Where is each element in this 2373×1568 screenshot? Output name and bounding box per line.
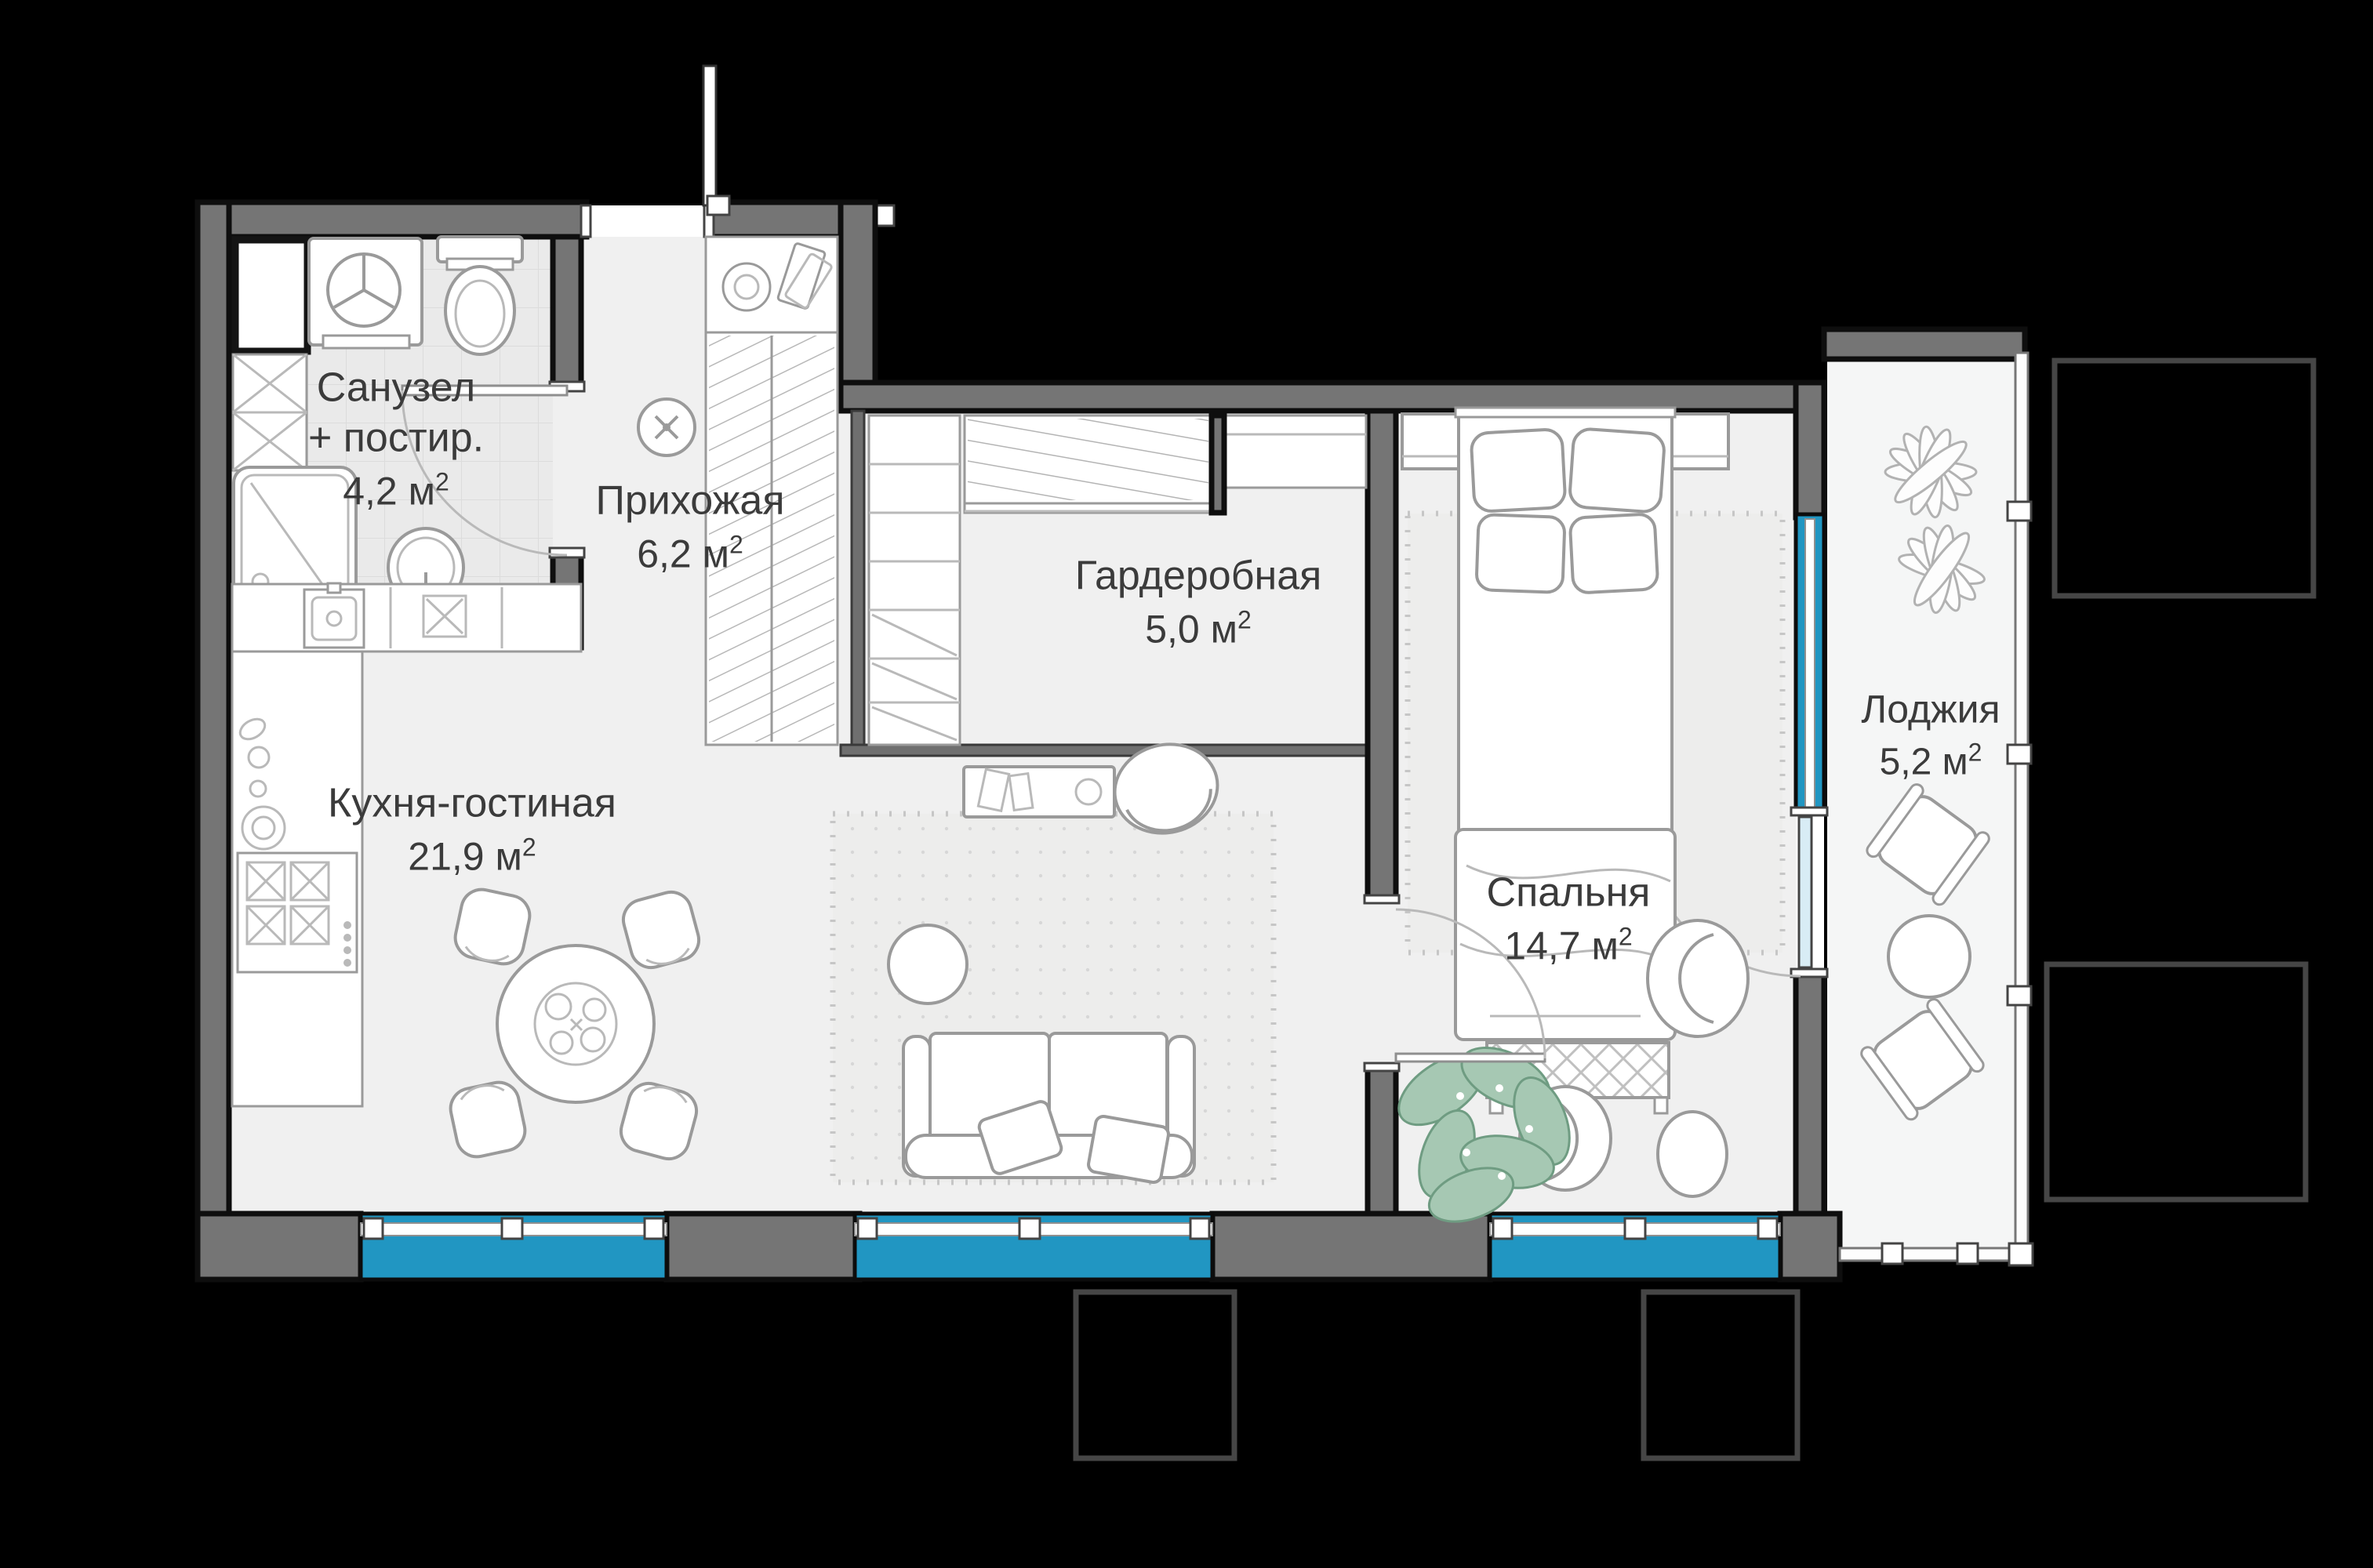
room-name: Санузел [308,368,484,408]
console-table [964,767,1114,817]
wardrobe-shelves [869,416,960,745]
ceiling-light-icon [638,399,695,456]
window-bedroom [1490,1214,1780,1279]
room-label-bathroom: Санузел + постир. 4,2 м2 [308,368,484,511]
wall-top-left [198,202,587,237]
room-area: 4,2 м2 [308,470,484,511]
entrance-door-leaf [703,66,716,205]
bedroom-armchair-top [1648,920,1748,1036]
room-label-wardrobe: Гардеробная 5,0 м2 [1075,556,1322,649]
pier-4 [1780,1214,1840,1279]
room-area: 5,2 м2 [1861,740,2000,782]
wall-end-cap [875,205,894,226]
bedroom-door-leaf [1396,1054,1545,1062]
room-label-bedroom: Спальня 14,7 м2 [1487,873,1651,966]
dining-chair [447,1079,529,1160]
wall-bathroom-right-upper [553,237,581,388]
wall-top-right-band [841,383,1824,411]
room-area: 21,9 м2 [328,835,616,877]
room-name: Спальня [1487,873,1651,913]
balcony-door-leaf [1799,817,1812,967]
wall-wardrobe-bottom [841,745,1396,756]
entrance-threshold [587,205,712,237]
room-name: Гардеробная [1075,556,1322,597]
room-name: Лоджия [1861,690,2000,729]
room-name: + постир. [308,418,484,459]
wall-hallway-wardrobe [852,411,864,745]
hallway-upper-cabinet [706,237,838,332]
wall-bedroom-right-bottom [1796,971,1824,1214]
room-label-loggia: Лоджия 5,2 м2 [1861,690,2000,782]
window-bedroom-right [1796,514,1824,814]
neighbor-balcony-outline [2055,361,2313,596]
loggia-table [1888,916,1970,997]
dining-table [497,946,654,1102]
entrance-door-hinge [707,196,729,215]
neighbor-balcony-outline [1644,1292,1797,1458]
bed [1455,408,1675,1113]
wardrobe-dresser [1223,416,1366,488]
room-area: 5,0 м2 [1075,608,1322,649]
wardrobe-hang-rail [965,416,1212,513]
wall-wardrobe-bedroom-lower [1368,1065,1396,1214]
bedroom-pouf [1658,1112,1727,1196]
wall-loggia-top [1824,329,2025,359]
entrance-door [581,66,729,237]
kitchen-sink-icon [304,583,364,648]
bedroom-door-opening [1368,902,1396,1065]
wall-left [198,202,229,1214]
floor-plan: Санузел + постир. 4,2 м2 Прихожая 6,2 м2… [0,0,2373,1568]
sofa [903,1033,1194,1184]
neighbor-balcony-outline [1076,1292,1234,1458]
nightstand-right [1672,414,1728,469]
wardrobe-divider [1212,416,1224,513]
pier-2 [667,1214,859,1279]
shaft [235,240,307,351]
pier-1 [198,1214,361,1279]
coffee-pouf [889,925,967,1004]
neighbor-balcony-outline [2047,964,2306,1200]
wall-wardrobe-bedroom-upper [1368,411,1396,902]
room-label-hallway: Прихожая 6,2 м2 [596,481,785,574]
room-name: Кухня-гостиная [328,783,616,824]
nightstand-left [1402,414,1459,469]
room-area: 14,7 м2 [1487,924,1651,966]
dining-chair [452,886,533,967]
linen-cabinet [233,354,307,470]
room-label-kitchen-living: Кухня-гостиная 21,9 м2 [328,783,616,877]
wall-notch-vertical [841,202,875,411]
pier-3 [1212,1214,1490,1279]
kitchen-counter-top [232,584,581,652]
room-name: Прихожая [596,481,785,521]
window-kitchen [361,1214,667,1279]
room-area: 6,2 м2 [596,532,785,574]
window-living [855,1214,1212,1279]
washing-machine-icon [309,238,422,348]
wall-bedroom-right-top [1796,383,1824,517]
